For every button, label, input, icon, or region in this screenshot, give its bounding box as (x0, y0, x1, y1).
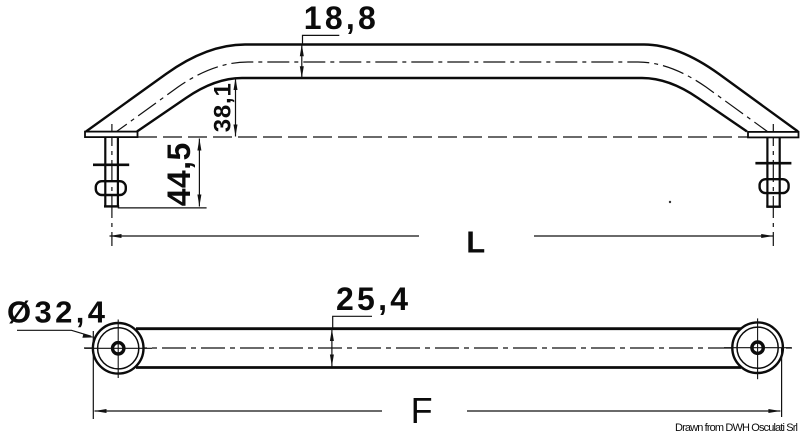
svg-text:Ø32,4: Ø32,4 (7, 294, 106, 329)
svg-text:L: L (466, 225, 485, 260)
svg-text:Drawn from DWH Osculati Srl: Drawn from DWH Osculati Srl (675, 422, 798, 433)
svg-text:F: F (411, 390, 433, 431)
svg-text:44,5: 44,5 (161, 143, 197, 207)
svg-text:38,1: 38,1 (210, 83, 237, 132)
svg-text:18,8: 18,8 (304, 0, 376, 36)
svg-text:25,4: 25,4 (336, 281, 408, 317)
